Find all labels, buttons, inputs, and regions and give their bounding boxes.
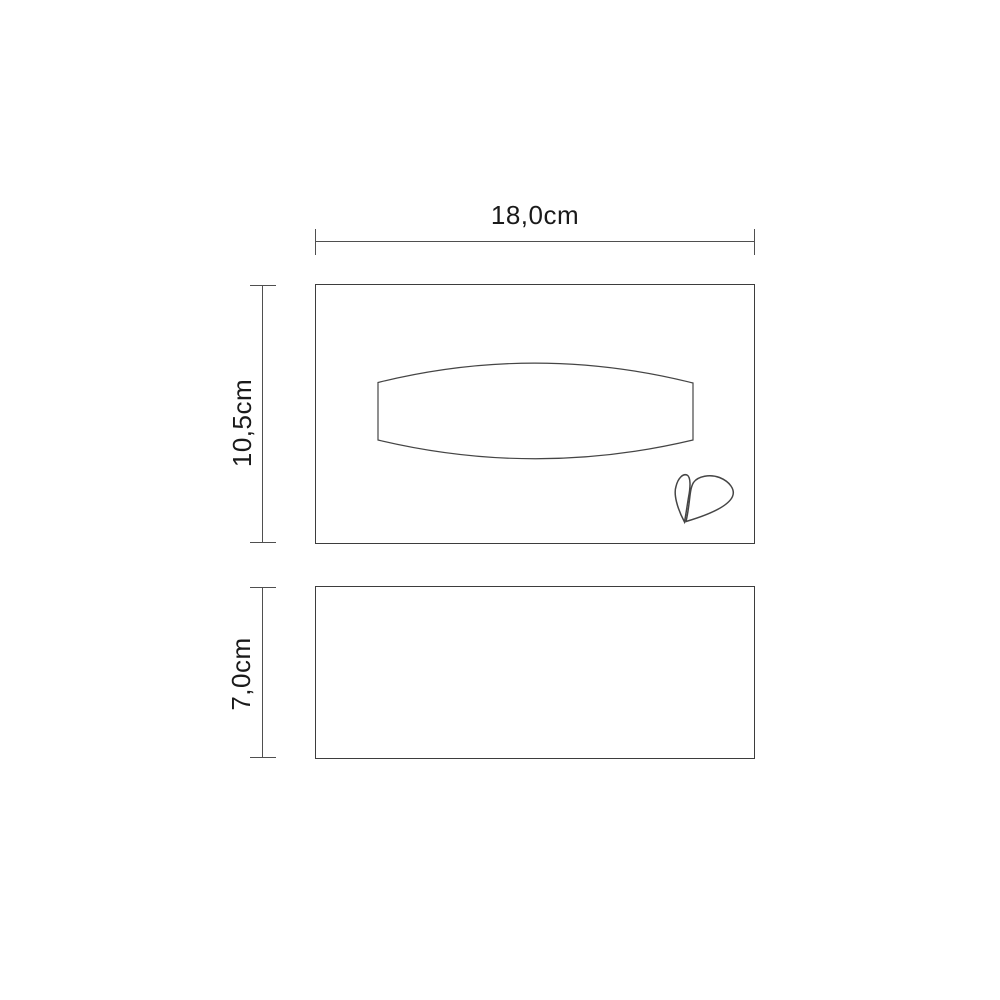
dimension-tick-left	[315, 229, 316, 255]
front-height-dimension-label: 10,5cm	[229, 379, 255, 467]
dimension-tick-bottom	[250, 757, 276, 758]
width-dimension-line	[315, 241, 755, 242]
tissue-box-side-view	[315, 586, 755, 759]
side-height-dimension-line	[262, 587, 263, 758]
dimension-tick-top	[250, 587, 276, 588]
dimension-drawing: 18,0cm 10,5cm 7,0cm	[0, 0, 1000, 1000]
front-height-dimension-line	[262, 285, 263, 543]
dimension-tick-top	[250, 285, 276, 286]
tissue-box-front-view	[315, 284, 755, 544]
dimension-tick-right	[754, 229, 755, 255]
dimension-tick-bottom	[250, 542, 276, 543]
width-dimension-label: 18,0cm	[491, 202, 579, 228]
side-height-dimension-label: 7,0cm	[228, 637, 254, 710]
